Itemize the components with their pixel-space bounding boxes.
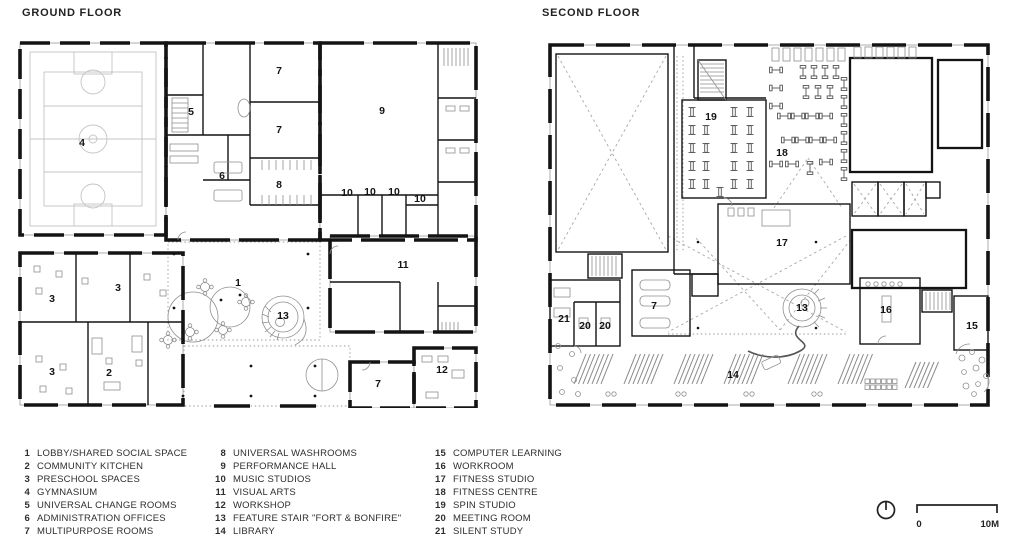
scale-bar (917, 505, 997, 513)
room-label-8: 8 (276, 179, 282, 191)
legend-item-14: 14LIBRARY (206, 525, 411, 538)
legend-item-label: FITNESS STUDIO (453, 473, 534, 486)
legend-column-3: 15COMPUTER LEARNING16WORKROOM17FITNESS S… (426, 447, 631, 538)
room-label-21: 21 (558, 313, 570, 325)
legend-item-number: 10 (206, 473, 226, 486)
legend-item-number: 1 (10, 447, 30, 460)
gf-courtyard-boundary (168, 242, 350, 406)
legend-item-label: SPIN STUDIO (453, 499, 516, 512)
room-label-7: 7 (375, 378, 381, 390)
legend-item-21: 21SILENT STUDY (426, 525, 631, 538)
legend-item-number: 6 (10, 512, 30, 525)
room-label-9: 9 (379, 105, 385, 117)
room-label-3: 3 (49, 366, 55, 378)
legend-item-number: 9 (206, 460, 226, 473)
room-label-10: 10 (341, 187, 353, 199)
legend-item-number: 12 (206, 499, 226, 512)
legend-item-16: 16WORKROOM (426, 460, 631, 473)
legend-item-label: COMPUTER LEARNING (453, 447, 562, 460)
legend-item-label: PERFORMANCE HALL (233, 460, 337, 473)
legend-item-label: FEATURE STAIR "FORT & BONFIRE" (233, 512, 401, 525)
legend-item-11: 11VISUAL ARTS (206, 486, 411, 499)
room-label-20: 20 (599, 320, 611, 332)
room-label-16: 16 (880, 304, 892, 316)
room-label-13: 13 (796, 302, 808, 314)
legend-column-1: 1LOBBY/SHARED SOCIAL SPACE2COMMUNITY KIT… (10, 447, 215, 538)
legend-item-label: VISUAL ARTS (233, 486, 296, 499)
legend-item-13: 13FEATURE STAIR "FORT & BONFIRE" (206, 512, 411, 525)
legend-item-label: PRESCHOOL SPACES (37, 473, 140, 486)
legend-item-2: 2COMMUNITY KITCHEN (10, 460, 215, 473)
legend-item-label: MUSIC STUDIOS (233, 473, 311, 486)
scale-max-label: 10M (981, 519, 1000, 530)
room-label-18: 18 (776, 147, 788, 159)
room-label-13: 13 (277, 310, 289, 322)
room-label-7: 7 (276, 65, 282, 77)
legend-item-19: 19SPIN STUDIO (426, 499, 631, 512)
room-label-7: 7 (651, 300, 657, 312)
ground-floor-plan: 456778910101010111133332712 (18, 40, 478, 408)
legend-item-label: SILENT STUDY (453, 525, 523, 538)
legend-item-15: 15COMPUTER LEARNING (426, 447, 631, 460)
room-label-3: 3 (49, 293, 55, 305)
legend-item-number: 7 (10, 525, 30, 538)
legend-item-1: 1LOBBY/SHARED SOCIAL SPACE (10, 447, 215, 460)
room-label-11: 11 (397, 259, 408, 271)
legend-item-number: 20 (426, 512, 446, 525)
legend-item-label: GYMNASIUM (37, 486, 97, 499)
legend-item-9: 9PERFORMANCE HALL (206, 460, 411, 473)
legend-item-number: 14 (206, 525, 226, 538)
legend-item-number: 2 (10, 460, 30, 473)
room-label-4: 4 (79, 137, 85, 149)
north-arrow-icon (878, 502, 895, 519)
legend-item-number: 17 (426, 473, 446, 486)
legend-item-6: 6ADMINISTRATION OFFICES (10, 512, 215, 525)
legend-item-number: 8 (206, 447, 226, 460)
room-label-15: 15 (966, 320, 978, 332)
legend-item-number: 18 (426, 486, 446, 499)
legend-item-3: 3PRESCHOOL SPACES (10, 473, 215, 486)
legend-item-label: FITNESS CENTRE (453, 486, 538, 499)
room-label-12: 12 (436, 364, 448, 376)
room-label-7: 7 (276, 124, 282, 136)
room-label-2: 2 (106, 367, 112, 379)
ground-floor-title: GROUND FLOOR (22, 7, 122, 19)
legend-item-label: UNIVERSAL WASHROOMS (233, 447, 357, 460)
legend-item-number: 3 (10, 473, 30, 486)
room-label-19: 19 (705, 111, 717, 123)
north-and-scale: 0 10M (862, 494, 1022, 536)
legend-item-number: 15 (426, 447, 446, 460)
legend-item-5: 5UNIVERSAL CHANGE ROOMS (10, 499, 215, 512)
legend-item-label: WORKROOM (453, 460, 514, 473)
room-label-5: 5 (188, 106, 194, 118)
room-label-6: 6 (219, 170, 225, 182)
legend-item-18: 18FITNESS CENTRE (426, 486, 631, 499)
legend-item-label: MEETING ROOM (453, 512, 531, 525)
room-label-1: 1 (235, 277, 241, 289)
legend-item-number: 11 (206, 486, 226, 499)
room-label-14: 14 (727, 369, 739, 381)
legend-item-number: 13 (206, 512, 226, 525)
legend-column-2: 8UNIVERSAL WASHROOMS9PERFORMANCE HALL10M… (206, 447, 411, 538)
room-label-20: 20 (579, 320, 591, 332)
legend-item-label: WORKSHOP (233, 499, 291, 512)
legend-item-label: UNIVERSAL CHANGE ROOMS (37, 499, 177, 512)
room-label-10: 10 (388, 186, 400, 198)
second-floor-title: SECOND FLOOR (542, 7, 640, 19)
gf-columns (173, 253, 317, 398)
legend-item-7: 7MULTIPURPOSE ROOMS (10, 525, 215, 538)
legend-item-number: 4 (10, 486, 30, 499)
legend-item-label: LOBBY/SHARED SOCIAL SPACE (37, 447, 187, 460)
legend-item-label: ADMINISTRATION OFFICES (37, 512, 166, 525)
legend-item-number: 5 (10, 499, 30, 512)
legend-item-number: 19 (426, 499, 446, 512)
legend-item-4: 4GYMNASIUM (10, 486, 215, 499)
legend-item-12: 12WORKSHOP (206, 499, 411, 512)
second-floor-plan: 191817721202013161514 (548, 42, 990, 407)
scale-zero-label: 0 (916, 519, 921, 530)
legend-item-number: 16 (426, 460, 446, 473)
room-label-10: 10 (414, 193, 426, 205)
room-label-17: 17 (776, 237, 788, 249)
room-label-3: 3 (115, 282, 121, 294)
legend-item-label: COMMUNITY KITCHEN (37, 460, 143, 473)
legend-item-20: 20MEETING ROOM (426, 512, 631, 525)
legend-item-10: 10MUSIC STUDIOS (206, 473, 411, 486)
legend-item-17: 17FITNESS STUDIO (426, 473, 631, 486)
legend-item-label: MULTIPURPOSE ROOMS (37, 525, 153, 538)
legend-item-label: LIBRARY (233, 525, 275, 538)
legend-item-number: 21 (426, 525, 446, 538)
room-label-10: 10 (364, 186, 376, 198)
legend-item-8: 8UNIVERSAL WASHROOMS (206, 447, 411, 460)
gf-lobby-furniture (160, 279, 338, 391)
